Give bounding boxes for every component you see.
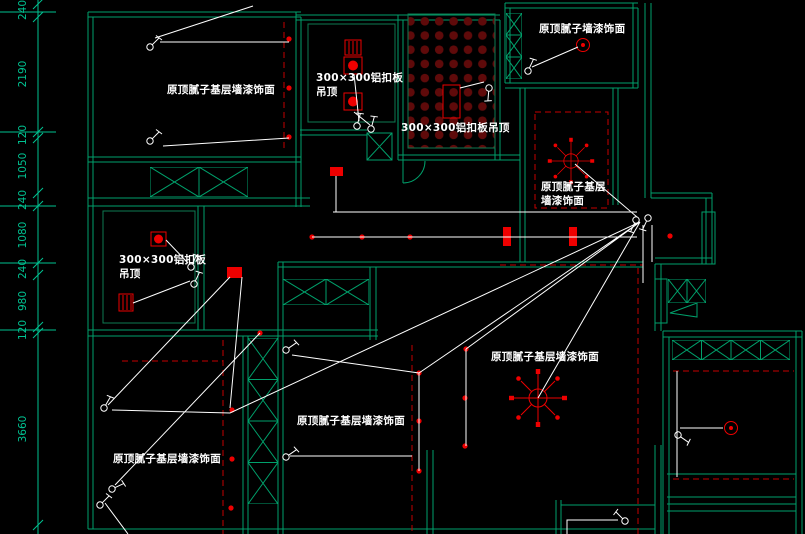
- wardrobe-x-box: [731, 340, 761, 360]
- room-finish-label: 原顶腻子基层墙漆饰面: [491, 350, 599, 363]
- switch-icon: [147, 36, 162, 51]
- switch-icon: [108, 477, 127, 496]
- room-finish-label: 墙漆饰面: [541, 194, 584, 207]
- dim-240a: 240: [17, 0, 29, 20]
- cad-canvas[interactable]: 240 2190 120 1050 240 1080 240 980 120 3…: [0, 0, 805, 534]
- cabinet-x-box: [199, 167, 248, 197]
- wardrobe-x-box: [761, 340, 791, 360]
- ceiling-lamp-square: [344, 93, 362, 110]
- switch-icon: [282, 338, 300, 355]
- switch-icon: [282, 445, 300, 462]
- cabinet-x-box: [150, 167, 199, 197]
- dim-1080: 1080: [17, 222, 29, 249]
- wardrobe-x-box: [248, 463, 278, 505]
- switch-icon: [187, 269, 206, 288]
- hall-grid-ceiling: [103, 211, 195, 323]
- ceiling-lamp-square: [151, 232, 166, 246]
- switches-layer: [97, 36, 692, 525]
- dim-3660: 3660: [17, 416, 29, 443]
- room-finish-label: 原顶腻子基层墙漆饰面: [167, 83, 275, 96]
- closet-x-box: [283, 279, 326, 305]
- wardrobe-x-box: [506, 35, 522, 57]
- switch-icon: [147, 130, 162, 145]
- dim-980: 980: [17, 291, 29, 311]
- dim-1050: 1050: [17, 153, 29, 180]
- wardrobe-x-box: [248, 338, 278, 380]
- wardrobe-x-box: [506, 13, 522, 35]
- exhaust-heater-light: [345, 40, 361, 55]
- wardrobe-x-box: [248, 421, 278, 463]
- ceiling-type-label: 300×300铝扣板: [316, 71, 403, 84]
- cabinet-x-box: [668, 279, 687, 303]
- switch-icon: [97, 494, 112, 509]
- wardrobe-x-box: [506, 57, 522, 79]
- column-hatch: [702, 212, 715, 264]
- ceiling-type-label: 吊顶: [316, 86, 338, 98]
- strip-light: [330, 167, 343, 176]
- hall-light: [227, 267, 242, 278]
- dim-120a: 120: [17, 125, 29, 145]
- dimension-chain: 240 2190 120 1050 240 1080 240 980 120 3…: [0, 0, 56, 534]
- dining-ceiling-border: [535, 112, 608, 208]
- exhaust-heater-light: [119, 294, 133, 311]
- dining-chandelier: [548, 138, 594, 184]
- ceiling-type-label: 300×300铝扣板吊顶: [401, 121, 510, 134]
- room-finish-label: 原顶腻子墙漆饰面: [539, 22, 626, 35]
- dim-240c: 240: [17, 259, 29, 279]
- room-finish-label: 原顶腻子基层: [541, 180, 606, 193]
- room-finish-label: 原顶腻子基层墙漆饰面: [297, 414, 405, 427]
- wardrobe-x-box: [702, 340, 732, 360]
- round-ceiling-light: [577, 39, 590, 52]
- switch-icon: [521, 56, 540, 75]
- dim-240b: 240: [17, 190, 29, 210]
- cabinet-x-box: [687, 279, 706, 303]
- room-finish-label: 原顶腻子基层墙漆饰面: [113, 452, 221, 465]
- grid-ceilings-layer: [103, 14, 495, 323]
- wardrobe-x-box: [672, 340, 702, 360]
- switch-icon: [614, 509, 629, 524]
- dim-2190: 2190: [17, 61, 29, 88]
- switch-icon: [348, 110, 369, 130]
- cad-viewport: 240 2190 120 1050 240 1080 240 980 120 3…: [0, 0, 805, 534]
- dim-120b: 120: [17, 320, 29, 340]
- round-ceiling-light: [725, 422, 738, 435]
- ceiling-type-label: 吊顶: [119, 268, 141, 280]
- wardrobe-x-box: [248, 380, 278, 422]
- closet-x-box: [326, 279, 369, 305]
- switch-icon: [98, 394, 116, 412]
- ceiling-type-label: 300×300铝扣板: [119, 253, 206, 266]
